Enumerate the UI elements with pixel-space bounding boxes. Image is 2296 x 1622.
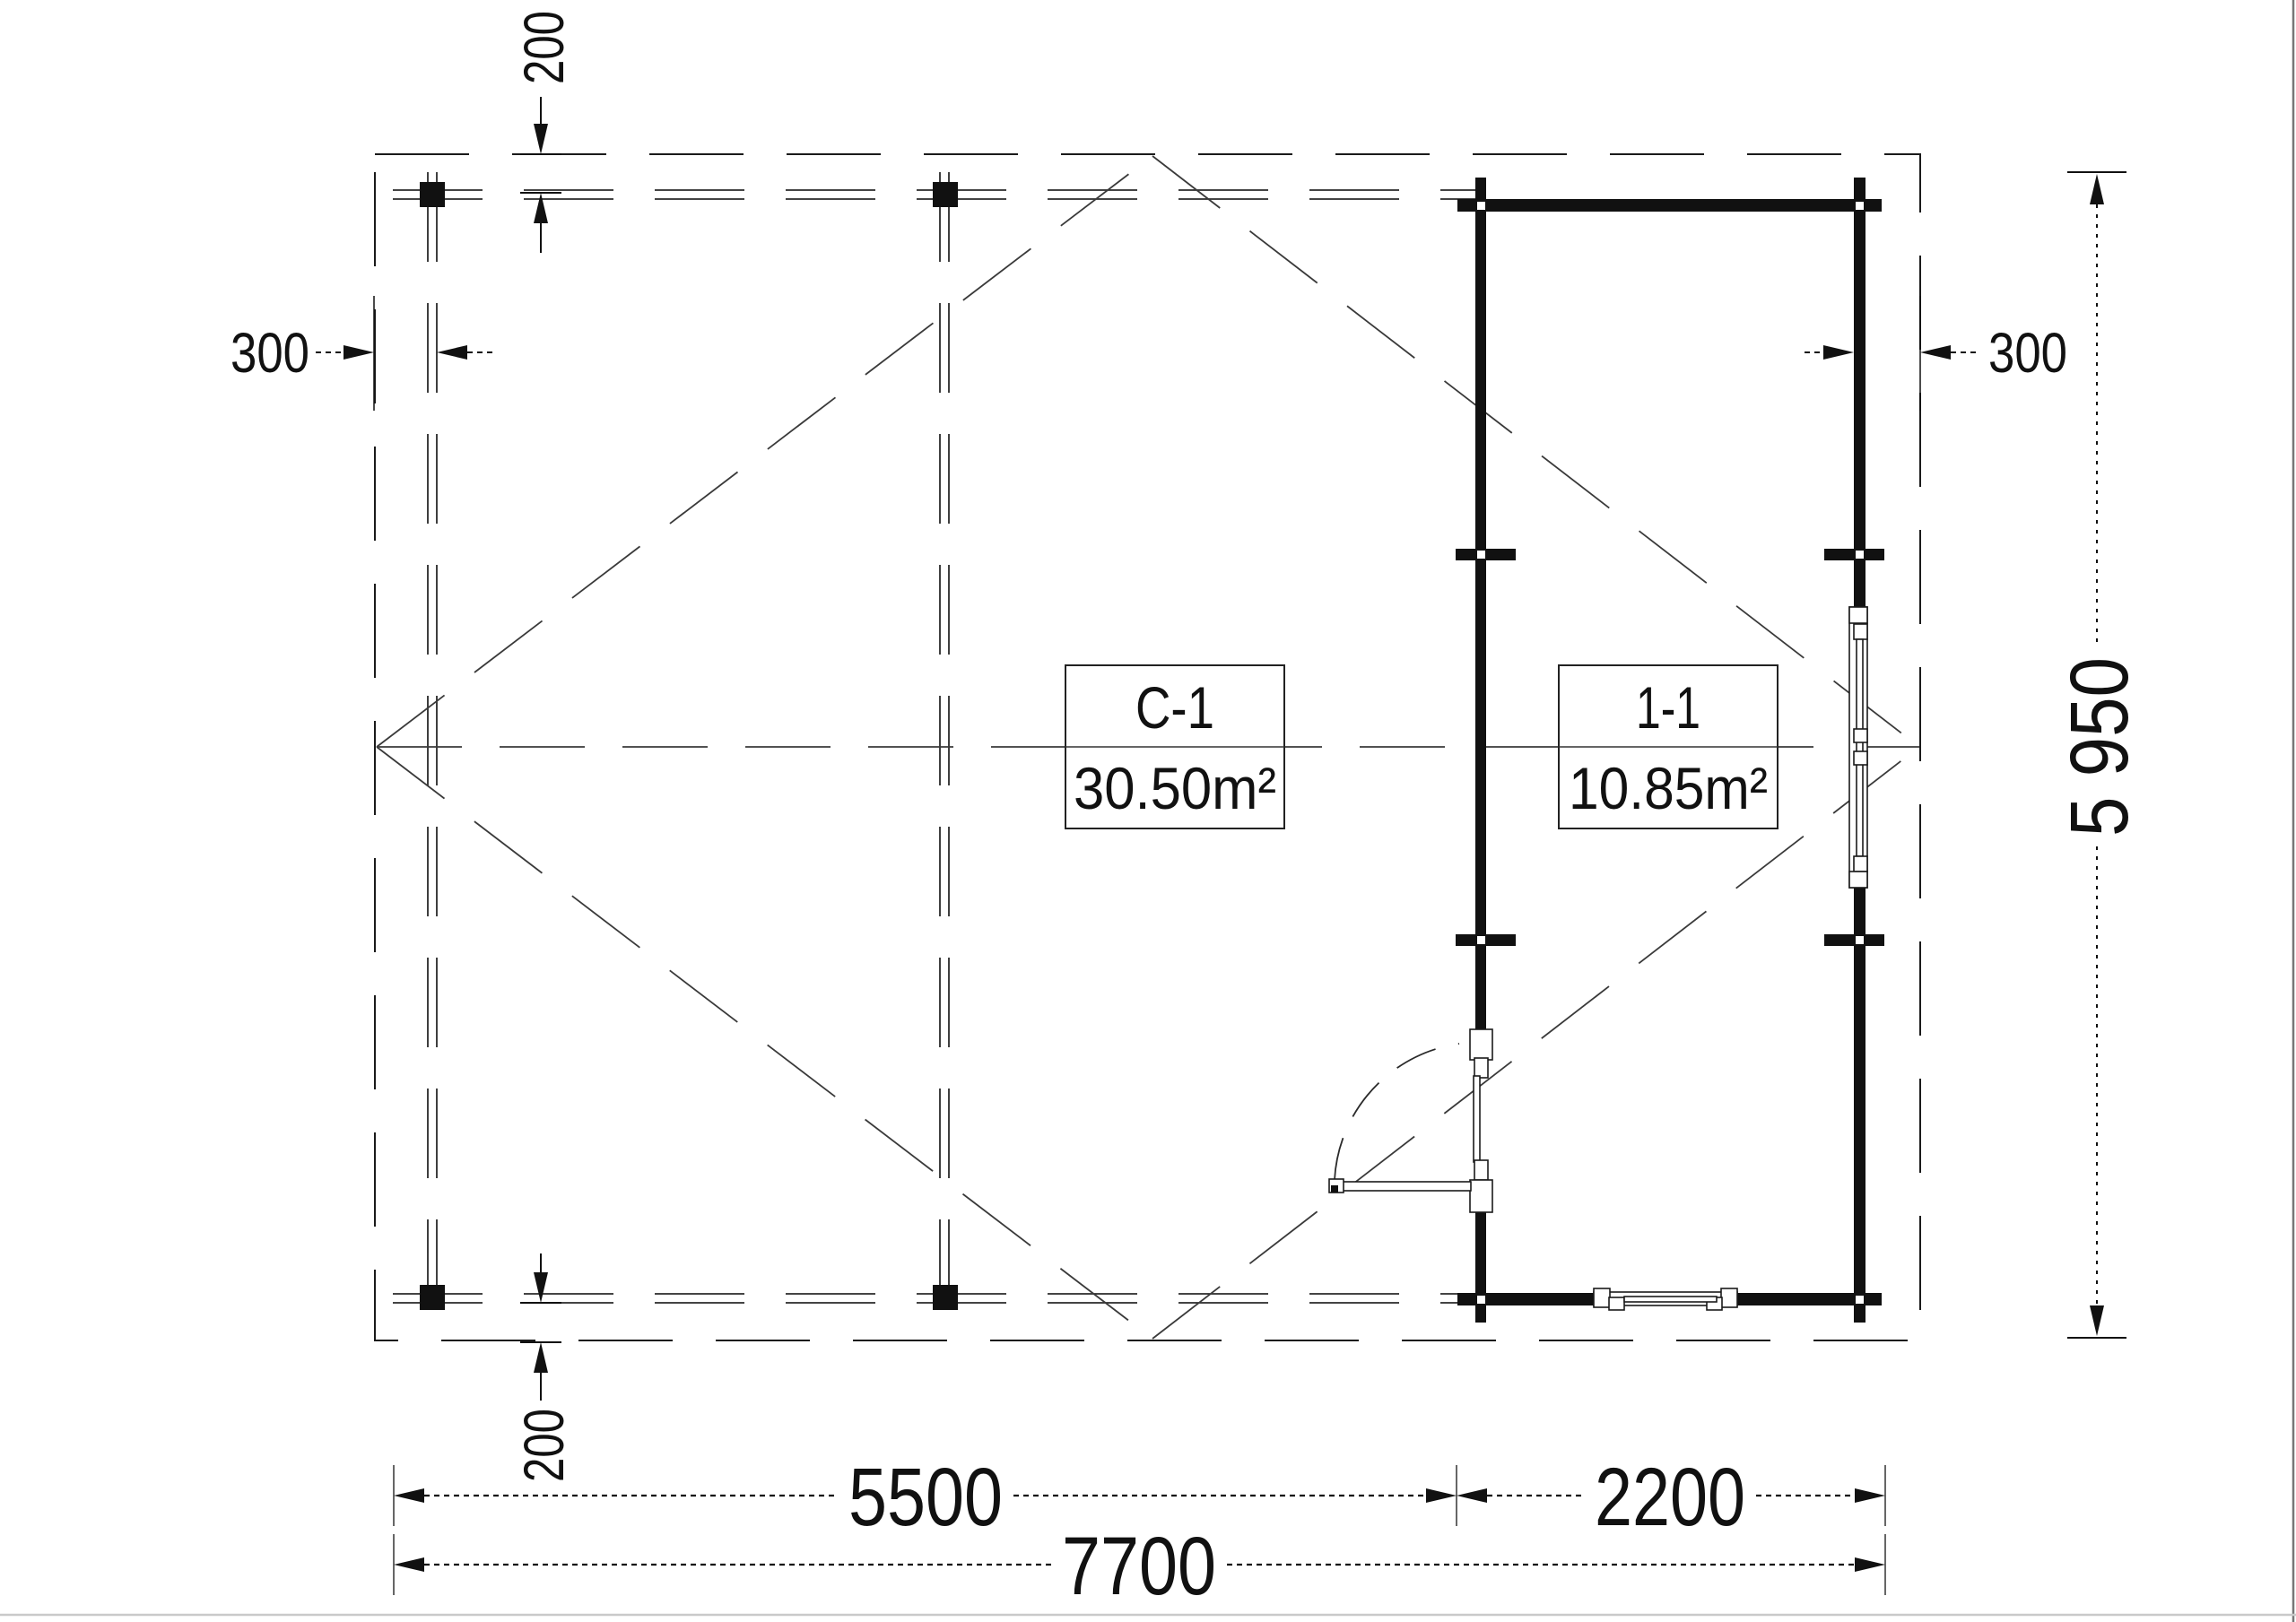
floor-plan-page: C-1 30.50m² 1-1 10.85m² 200 200 300: [0, 0, 2296, 1622]
dim-bottom-offset: 200: [513, 1253, 576, 1482]
door-jamb-bottom: [1470, 1180, 1492, 1212]
room-1-1-area: 10.85m²: [1569, 755, 1768, 821]
wall-left-upper: [1475, 178, 1486, 1029]
wall-right-lower: [1854, 888, 1865, 1323]
room-label-1-1: 1-1 10.85m²: [1559, 665, 1778, 828]
dim-top-offset: 200: [513, 11, 576, 253]
post-bottom-middle: [933, 1285, 958, 1310]
door-swing-arc: [1335, 1044, 1459, 1180]
door-leaf: [1343, 1182, 1471, 1191]
dim-right-overhang: 300: [1805, 296, 2067, 411]
log-crossing-left-lower: [1456, 934, 1516, 946]
wall-left-lower: [1475, 1212, 1486, 1323]
window-right-wall: [1849, 607, 1867, 888]
post-bottom-left: [420, 1285, 445, 1310]
log-crossing-left-upper: [1456, 549, 1516, 560]
carport-posts: [420, 182, 958, 1310]
dim-top-offset-value: 200: [513, 11, 576, 84]
wall-right-upper: [1854, 178, 1865, 608]
room-c1-name: C-1: [1135, 674, 1214, 741]
door-frame: [1474, 1076, 1480, 1162]
dim-span-right-value: 2200: [1595, 1452, 1745, 1543]
structural-grid: [393, 172, 1480, 1320]
dim-left-overhang-value: 300: [230, 322, 309, 385]
log-crossing-right-upper: [1824, 549, 1884, 560]
dim-span-left-value: 5500: [848, 1452, 1003, 1543]
room-c1-area: 30.50m²: [1074, 755, 1276, 821]
dim-total-height: 5 950: [2054, 172, 2145, 1338]
dim-right-overhang-value: 300: [1988, 322, 2067, 385]
window-bottom-wall: [1594, 1288, 1737, 1310]
dim-span-right: 2200: [1457, 1452, 1885, 1543]
dim-span-total-value: 7700: [1062, 1521, 1216, 1612]
floor-plan-drawing: C-1 30.50m² 1-1 10.85m² 200 200 300: [0, 0, 2296, 1622]
dim-total-height-value: 5 950: [2054, 657, 2145, 837]
post-top-middle: [933, 182, 958, 207]
door-jamb-top: [1470, 1029, 1492, 1060]
door: [1329, 1029, 1492, 1212]
dim-bottom-offset-value: 200: [513, 1409, 576, 1482]
wall-top: [1457, 199, 1882, 212]
room-label-c1: C-1 30.50m²: [1065, 665, 1284, 828]
log-crossing-right-lower: [1824, 934, 1884, 946]
dim-left-overhang: 300: [230, 296, 496, 411]
post-top-left: [420, 182, 445, 207]
room-1-1-name: 1-1: [1636, 674, 1700, 741]
